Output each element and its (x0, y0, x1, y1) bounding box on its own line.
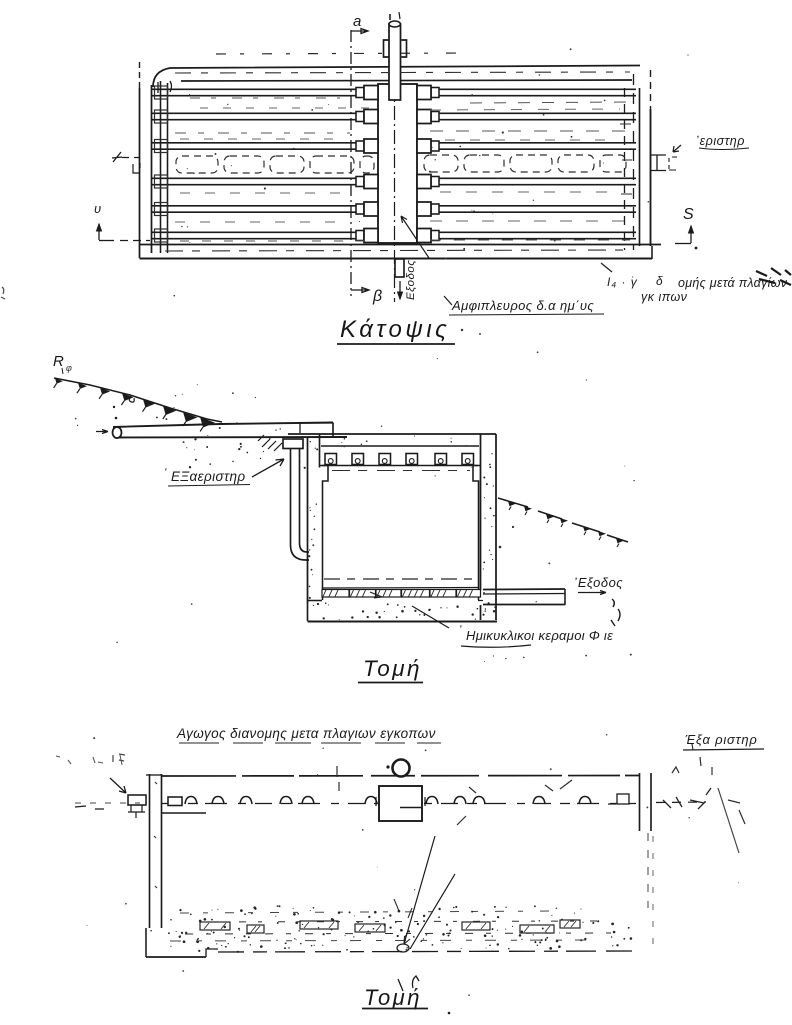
svg-text:φ: φ (66, 363, 72, 373)
svg-text:Τομή: Τομή (364, 985, 422, 1010)
svg-text:Κάτοψις: Κάτοψις (340, 316, 450, 343)
svg-text:᾽: ᾽ (458, 623, 462, 637)
svg-text:Τομή: Τομή (363, 656, 422, 681)
svg-text:ΕΞαεριστηρ: ΕΞαεριστηρ (171, 469, 246, 484)
svg-text:β: β (372, 288, 382, 305)
svg-text:S: S (683, 206, 694, 223)
svg-text:a: a (353, 13, 361, 30)
svg-text:Ημικυκλικοι κεραμοι Φ ιε: Ημικυκλικοι κεραμοι Φ ιε (466, 628, 613, 643)
svg-text:υ: υ (94, 201, 101, 216)
svg-text:Αμφιπλευρος δ.α ημ΄υς: Αμφιπλευρος δ.α ημ΄υς (451, 298, 594, 313)
svg-text:᾽Εξοδος: ᾽Εξοδος (573, 575, 623, 590)
svg-text:δ: δ (656, 274, 663, 288)
svg-text:᾽: ᾽ (163, 466, 167, 480)
svg-text:R: R (53, 353, 64, 370)
svg-text:Αγωγος διανομης μετα πλαγιων: Αγωγος διανομης μετα πλαγιων εγκοπων (176, 726, 436, 741)
svg-text:γκ ιπων: γκ ιπων (641, 290, 688, 304)
svg-text:᾽εριστηρ: ᾽εριστηρ (695, 134, 745, 148)
svg-text:Εξοδος: Εξοδος (405, 260, 417, 300)
svg-text:Έξα ριστηρ: Έξα ριστηρ (685, 732, 758, 747)
